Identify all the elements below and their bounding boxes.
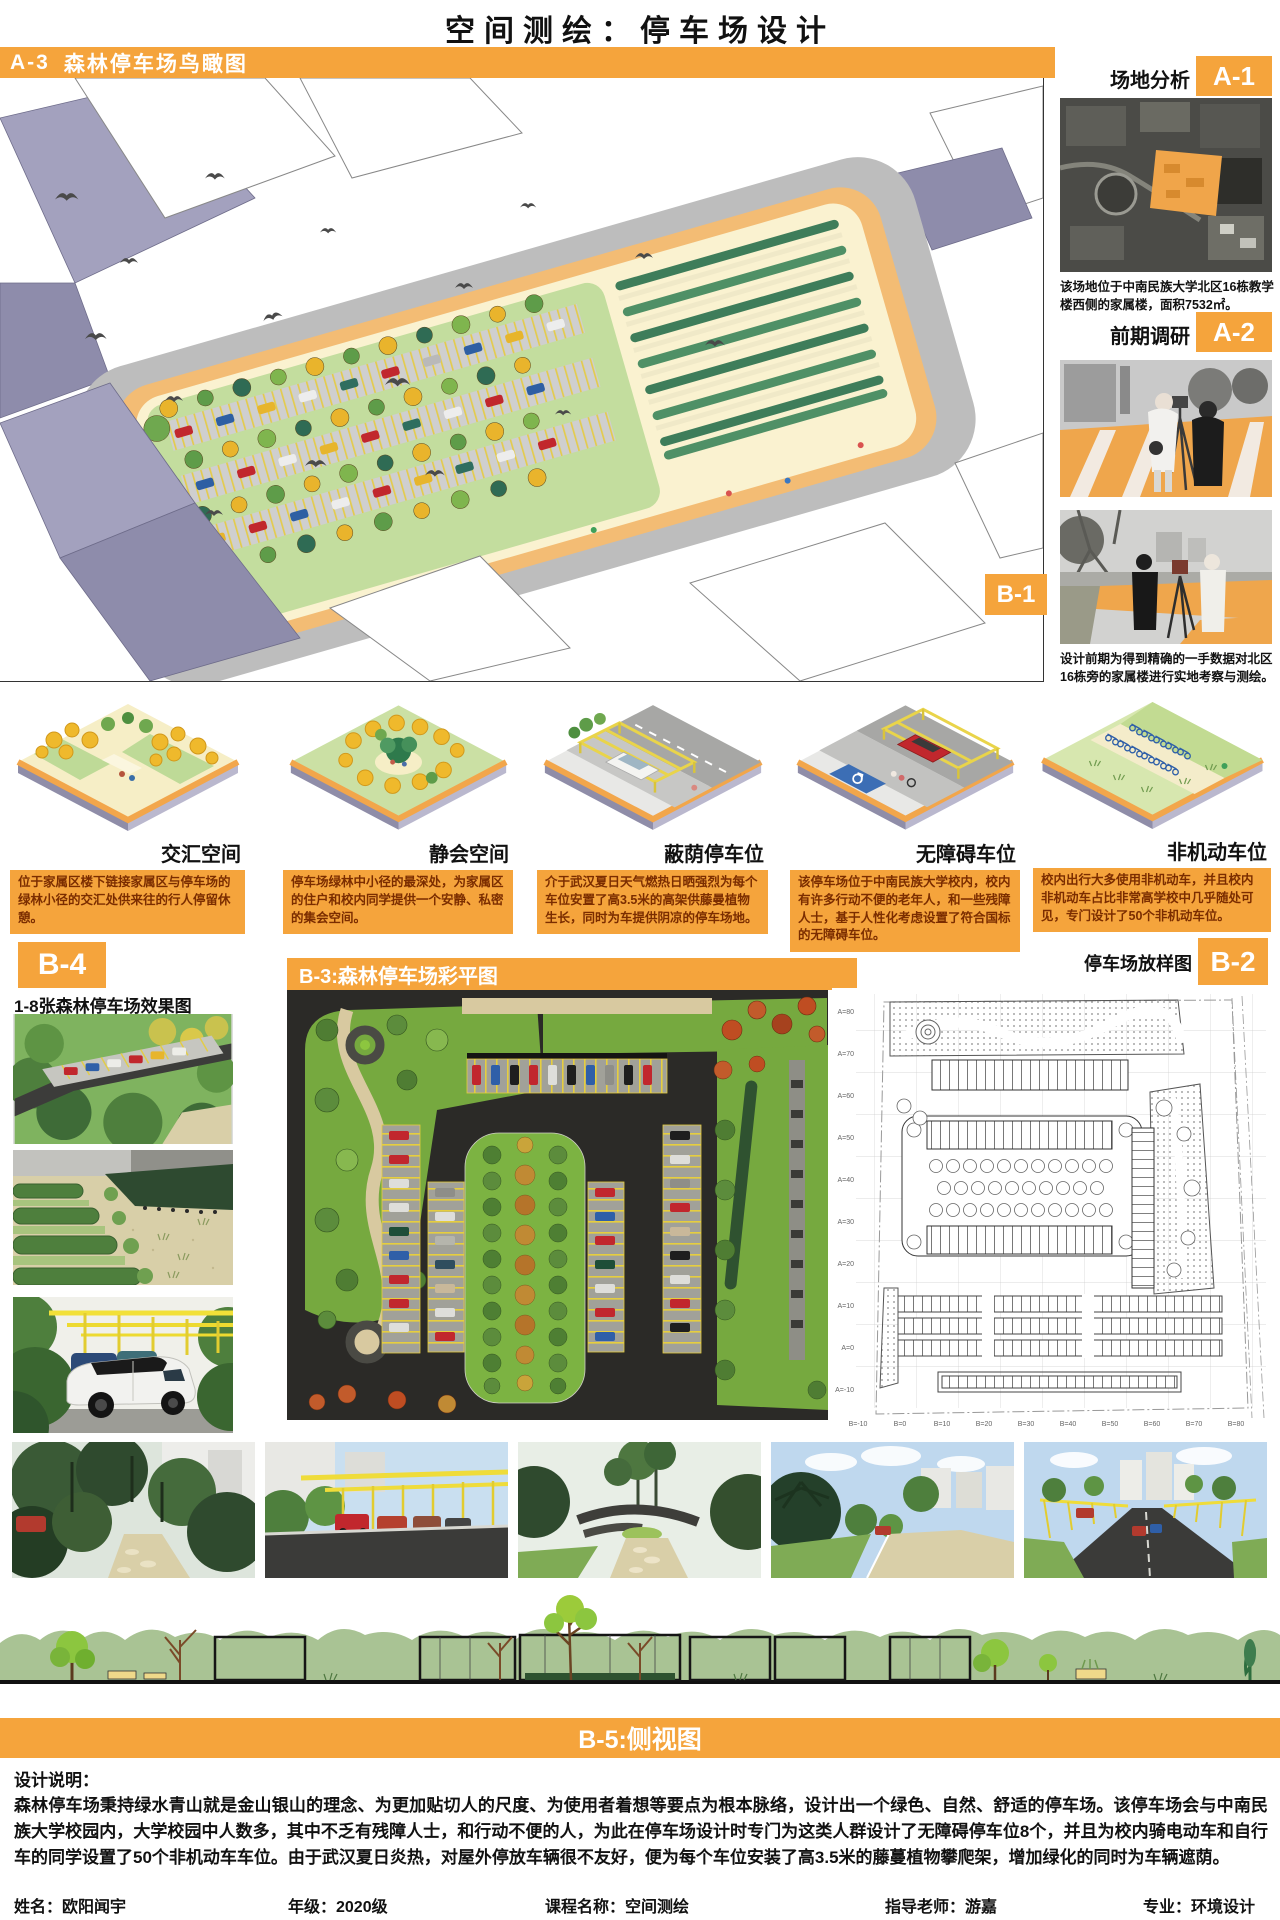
diagram-accessible-parking [790,690,1020,846]
b1-item-quiet: 静会空间 停车场绿林中小径的最深处，为家属区的住户和校内同学提供一个安静、私密的… [283,690,513,934]
a3-banner: A-3 森林停车场鸟瞰图 [0,47,1055,78]
a1-title: 场地分析 [1050,64,1190,93]
footer-grade: 年级：2020级 [288,1893,388,1917]
svg-text:A=50: A=50 [837,1135,854,1142]
layout-drawing-art: A=80A=70A=60A=50A=40A=30A=20A=10A=0A=-10… [832,988,1276,1430]
birdseye-frame [0,78,1044,682]
diagram-intersection-space [10,690,245,846]
survey-photo-2 [1060,510,1272,644]
render-photo-3 [13,1297,233,1433]
render-photo-3-art [13,1297,233,1433]
a1-badge: A-1 [1196,56,1272,96]
footer-major: 专业：环境设计 [1143,1893,1255,1917]
side-elevation [0,1585,1280,1718]
render-photo-6-art [518,1442,761,1578]
b3-banner: B-3:森林停车场彩平图 [287,958,857,990]
svg-text:A=10: A=10 [837,1303,854,1310]
b2-badge: B-2 [1198,938,1268,985]
render-photo-6 [518,1442,761,1578]
svg-text:B=30: B=30 [1018,1421,1035,1428]
svg-text:B=50: B=50 [1102,1421,1119,1428]
render-photo-1-art [13,1014,233,1144]
survey-photo-1 [1060,360,1272,497]
a2-badge: A-2 [1196,312,1272,352]
svg-text:A=70: A=70 [837,1051,854,1058]
render-photo-2 [13,1150,233,1285]
render-photo-2-art [13,1150,233,1285]
birdseye-illustration [0,78,1043,681]
a3-title: 森林停车场鸟瞰图 [64,48,248,78]
diagram-shaded-parking [537,690,768,846]
page-title: 空间测绘：停车场设计 [0,6,1280,50]
svg-text:B=70: B=70 [1186,1421,1203,1428]
layout-drawing: A=80A=70A=60A=50A=40A=30A=20A=10A=0A=-10… [832,988,1276,1430]
a2-title: 前期调研 [1050,320,1190,349]
footer-name: 姓名：欧阳闻宇 [14,1893,126,1917]
render-photo-8 [1024,1442,1267,1578]
render-photo-7-art [771,1442,1014,1578]
svg-text:A=20: A=20 [837,1261,854,1268]
a3-badge-label: A-3 [10,51,50,75]
render-photo-5-art [265,1442,508,1578]
render-photo-1 [13,1014,233,1144]
svg-text:A=40: A=40 [837,1177,854,1184]
b1-item-desc: 校内出行大多使用非机动车，并且校内非机动车占比非常高学校中几乎随处可见，专门设计… [1033,868,1271,932]
svg-text:B=40: B=40 [1060,1421,1077,1428]
diagram-non-motor-parking [1033,688,1271,844]
b2-title: 停车场放样图 [1060,950,1192,976]
side-elevation-art [0,1585,1280,1718]
survey-photo-2-art [1060,510,1272,644]
svg-text:B=0: B=0 [894,1421,907,1428]
footer-course: 课程名称：空间测绘 [545,1893,689,1917]
b1-item-accessible: 无障碍车位 该停车场位于中南民族大学校内，校内有许多行动不便的老年人，和一些残障… [790,690,1020,952]
b1-badge: B-1 [985,574,1047,615]
b1-item-label: 无障碍车位 [790,838,1020,867]
b1-item-label: 静会空间 [283,838,513,867]
design-notes-heading: 设计说明： [14,1766,1268,1791]
b1-item-label: 交汇空间 [10,838,245,867]
b1-item-desc: 停车场绿林中小径的最深处，为家属区的住户和校内同学提供一个安静、私密的集会空间。 [283,870,513,934]
render-photo-7 [771,1442,1014,1578]
b1-item-label: 非机动车位 [1033,836,1271,865]
a1-caption: 该场地位于中南民族大学北区16栋教学楼西侧的家属楼，面积7532㎡。 [1060,278,1274,314]
b1-item-shaded: 蔽荫停车位 介于武汉夏日天气燃热日晒强烈为每个车位安置了高3.5米的高架供藤曼植… [537,690,768,934]
site-color-plan-art [287,990,828,1420]
b1-item-nonmotor: 非机动车位 校内出行大多使用非机动车，并且校内非机动车占比非常高学校中几乎随处可… [1033,688,1271,932]
design-poster: 空间测绘：停车场设计 A-3 森林停车场鸟瞰图 [0,0,1280,1920]
svg-text:A=80: A=80 [837,1009,854,1016]
design-notes-body: 森林停车场秉持绿水青山就是金山银山的理念、为更加贴切人的尺度、为使用者着想等要点… [14,1793,1268,1870]
svg-text:B=-10: B=-10 [849,1421,868,1428]
b1-item-desc: 位于家属区楼下链接家属区与停车场的绿林小径的交汇处供来往的行人停留休憩。 [10,870,245,934]
satellite-image [1060,98,1272,272]
svg-text:B=60: B=60 [1144,1421,1161,1428]
site-color-plan [287,990,828,1420]
b1-item-intersection: 交汇空间 位于家属区楼下链接家属区与停车场的绿林小径的交汇处供来往的行人停留休憩… [10,690,245,934]
svg-text:B=20: B=20 [976,1421,993,1428]
render-photo-8-art [1024,1442,1267,1578]
svg-text:A=30: A=30 [837,1219,854,1226]
render-photo-4-art [12,1442,255,1578]
svg-text:A=-10: A=-10 [835,1387,854,1394]
b4-badge: B-4 [18,942,106,988]
b5-banner: B-5:侧视图 [0,1718,1280,1758]
render-photo-4 [12,1442,255,1578]
a2-caption: 设计前期为得到精确的一手数据对北区16栋旁的家属楼进行实地考察与测绘。 [1060,650,1274,686]
svg-text:A=60: A=60 [837,1093,854,1100]
survey-photo-1-art [1060,360,1272,497]
footer-advisor: 指导老师：游嘉 [885,1893,997,1917]
svg-text:B=80: B=80 [1228,1421,1245,1428]
render-photo-5 [265,1442,508,1578]
b1-item-desc: 该停车场位于中南民族大学校内，校内有许多行动不便的老年人，和一些残障人士，基于人… [790,870,1020,952]
svg-text:B=10: B=10 [934,1421,951,1428]
diagram-quiet-gathering-space [283,690,513,846]
b1-item-label: 蔽荫停车位 [537,838,768,867]
b1-item-desc: 介于武汉夏日天气燃热日晒强烈为每个车位安置了高3.5米的高架供藤曼植物生长，同时… [537,870,768,934]
satellite-art [1060,98,1272,272]
design-notes: 设计说明： 森林停车场秉持绿水青山就是金山银山的理念、为更加贴切人的尺度、为使用… [14,1766,1268,1870]
svg-text:A=0: A=0 [841,1345,854,1352]
